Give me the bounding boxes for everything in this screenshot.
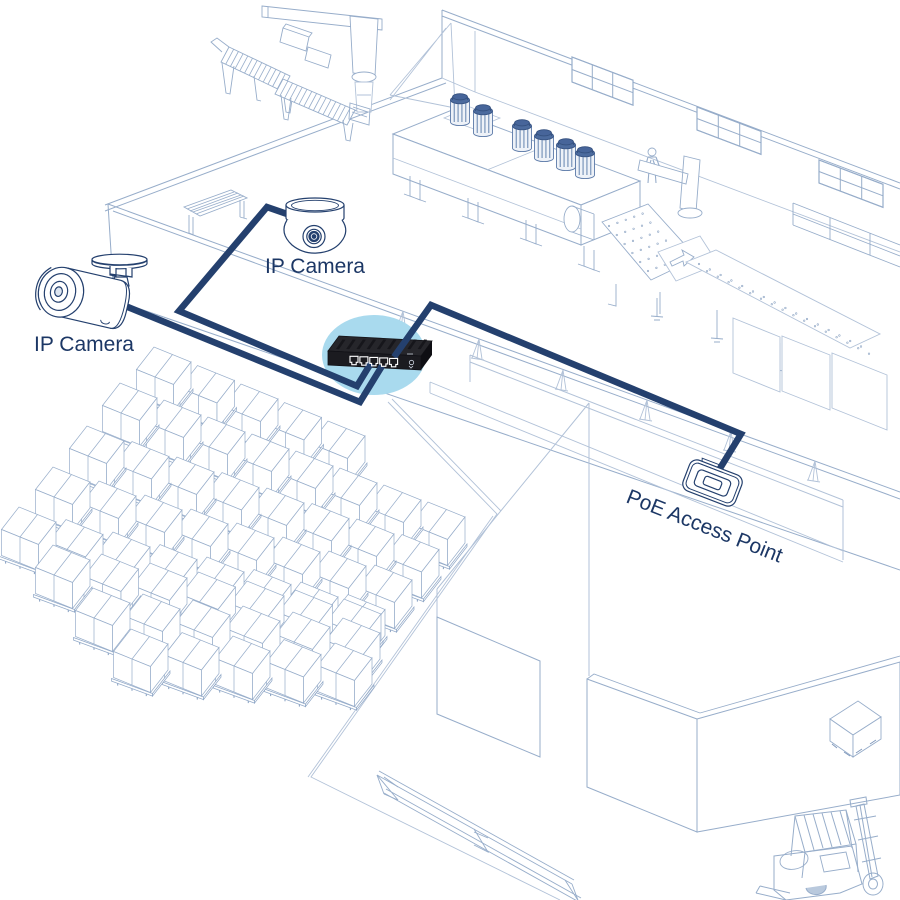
- svg-text:IP Camera: IP Camera: [265, 255, 365, 278]
- svg-text:IP Camera: IP Camera: [34, 333, 134, 356]
